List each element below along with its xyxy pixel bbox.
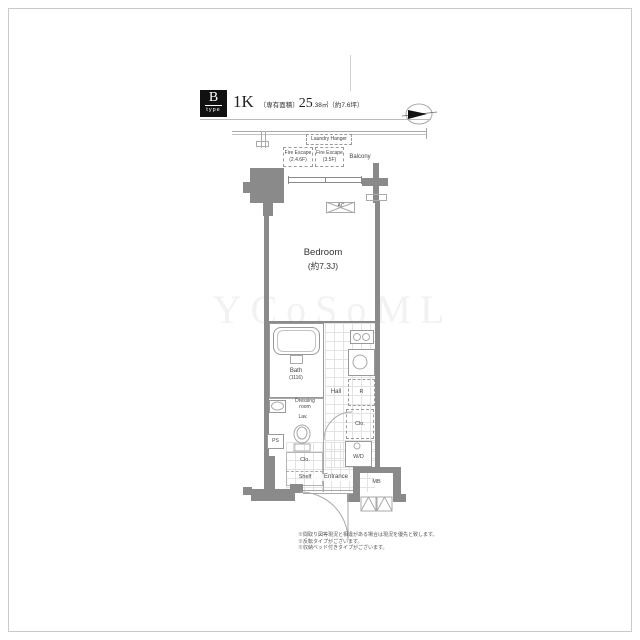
window-mid-tick: [325, 177, 326, 183]
pipe-shaft-label: PS: [268, 439, 283, 445]
hall-label: Hall: [322, 389, 350, 396]
pillar-bottom-left-vertical: [264, 456, 275, 490]
wall-right: [375, 201, 380, 467]
pipe-shaft-box: PS: [267, 434, 284, 449]
type-badge-word: type: [200, 106, 227, 114]
type-badge: B type: [200, 90, 227, 117]
laundry-hanger-box: Laundry Hanger: [306, 134, 352, 145]
mb-stub-left: [347, 494, 360, 502]
balcony-divider: [366, 194, 387, 201]
pillar-top-left: [250, 168, 284, 203]
area-value: 25: [299, 96, 313, 112]
pillar-top-left-tab: [243, 182, 251, 193]
floorplan-page: B type 1K 〔専有面積〕 25 .38㎡（約7.6坪） YCoSoML …: [0, 0, 640, 640]
refrigerator-label: R: [349, 389, 374, 395]
pillar-top-right-horizontal: [362, 178, 388, 186]
fire-escape-1-label: Fire Escape: [284, 151, 312, 157]
plan-title: 1K 〔専有面積〕 25 .38㎡（約7.6坪）: [233, 92, 363, 112]
bath-counter: [290, 355, 303, 364]
balcony-end-tick: [426, 128, 427, 139]
bath-size-label: (1116): [276, 376, 316, 382]
vanity-basin: [269, 400, 286, 413]
balcony-label: Balcony: [344, 154, 376, 161]
page-fold-line: [350, 55, 351, 91]
window-end-left: [288, 176, 289, 184]
mb-stub-right: [393, 494, 406, 502]
entrance-threshold-1: [303, 490, 353, 491]
closet-left-label: Clo.: [287, 457, 323, 463]
dressing-room-label-2: room: [287, 405, 323, 411]
entrance-wall-stub: [290, 484, 303, 493]
pillar-bottom-left-base: [251, 489, 295, 501]
bedroom-size-label: (約7.3J): [280, 262, 366, 272]
closet-right-label: Clo.: [347, 421, 373, 427]
disclaimer-line-1: ※間取り図等現況と相違がある場合は現況を優先と致します。: [298, 532, 438, 539]
fire-escape-2-label: Fire Escape: [316, 151, 343, 157]
stove: [350, 330, 374, 344]
disclaimer-line-3: ※収納ベッド付きタイプがございます。: [298, 545, 438, 552]
area-detail: .38㎡（約7.6坪）: [313, 99, 364, 109]
ac-label: AC: [334, 204, 348, 210]
header-rule: [200, 119, 431, 120]
mb-wall-right: [393, 467, 401, 497]
fire-escape-2-floors: (3.5F): [316, 158, 343, 164]
washer-dryer-label: W/D: [346, 454, 371, 460]
pillar-bottom-left-tab: [243, 487, 252, 495]
layout-type: 1K: [233, 92, 254, 112]
type-badge-letter: B: [200, 90, 227, 105]
meter-box-label: MB: [360, 479, 393, 485]
entrance-threshold-2: [303, 493, 353, 494]
area-prefix: 〔専有面積〕: [260, 99, 299, 109]
balcony-partition: [256, 141, 269, 147]
disclaimer-notes: ※間取り図等現況と相違がある場合は現況を優先と致します。 ※反転タイプがございま…: [298, 532, 438, 552]
fire-escape-1-box: Fire Escape (2.4.6F): [283, 147, 313, 167]
mb-wall-left: [353, 467, 360, 497]
kitchen-sink-unit: [348, 349, 375, 376]
fire-escape-2-box: Fire Escape (3.5F): [315, 147, 344, 167]
laundry-hanger-label: Laundry Hanger: [307, 137, 351, 143]
shelf-line: [286, 471, 323, 473]
lav-label: Lav.: [293, 415, 313, 421]
bathtub-inner: [277, 330, 316, 352]
closet-right-box: Clo.: [346, 409, 374, 439]
bedroom-label: Bedroom: [280, 248, 366, 259]
refrigerator-space: R: [348, 379, 375, 406]
fire-escape-1-floors: (2.4.6F): [284, 158, 312, 164]
bath-label: Bath: [276, 368, 316, 375]
washer-dryer-box: W/D: [345, 441, 372, 467]
